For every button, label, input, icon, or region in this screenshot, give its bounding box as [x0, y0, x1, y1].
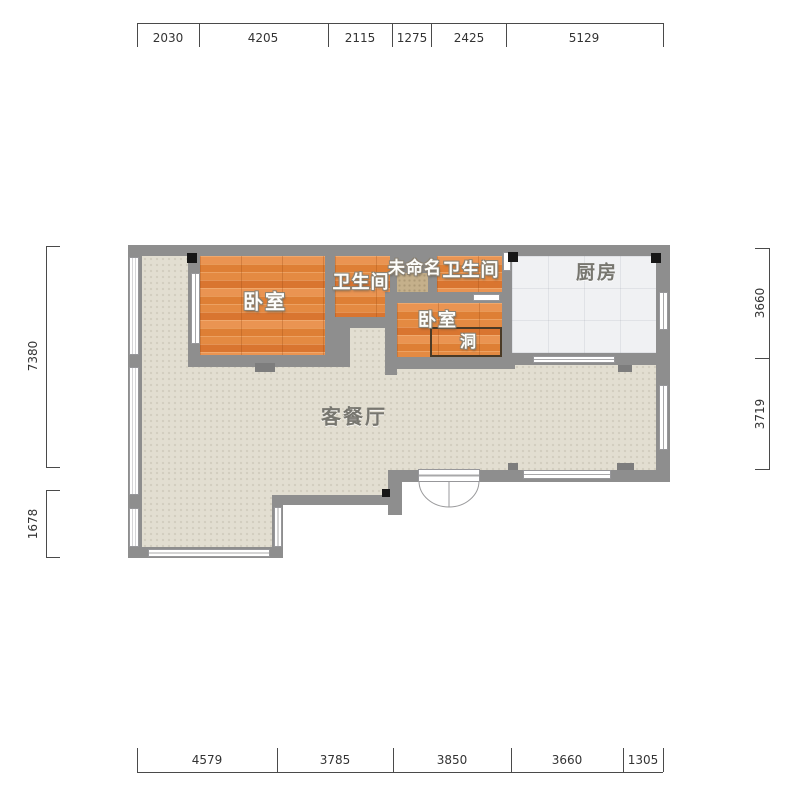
- bathroom1-label: 卫生间: [333, 268, 390, 294]
- window-kitchen-bottom: [533, 356, 615, 363]
- window-left-middle: [129, 367, 139, 495]
- ruler-right-line: [769, 248, 770, 470]
- dim-left-1: 7380: [26, 341, 40, 372]
- dim-bottom-5: 1305: [628, 753, 659, 767]
- ruler-left-tick: [46, 490, 60, 491]
- ruler-top-tick: [328, 23, 329, 47]
- dim-left-2: 1678: [26, 509, 40, 540]
- ruler-right-tick: [755, 358, 770, 359]
- window-right-living: [659, 385, 668, 450]
- dim-right-2: 3719: [753, 399, 767, 430]
- ruler-top-tick: [431, 23, 432, 47]
- dim-bottom-4: 3660: [552, 753, 583, 767]
- ruler-right-tick: [755, 248, 770, 249]
- bedroom1-label: 卧室: [243, 286, 287, 315]
- ruler-bottom-tick: [623, 748, 624, 772]
- ruler-right-tick: [755, 469, 770, 470]
- window-extension-bottom: [148, 549, 270, 557]
- corner-marker-kitchen-left: [508, 252, 518, 262]
- window-bottom-right: [523, 470, 611, 479]
- ruler-left-tick: [46, 557, 60, 558]
- bedroom2-label: 卧室: [418, 306, 458, 332]
- ruler-bottom-line: [137, 772, 663, 773]
- ruler-top-line: [137, 23, 663, 24]
- window-left-lower: [129, 508, 139, 547]
- ruler-bottom-tick: [663, 748, 664, 772]
- dim-bottom-1: 4579: [192, 753, 223, 767]
- hole-label: 洞: [460, 328, 476, 352]
- ruler-top-tick: [392, 23, 393, 47]
- ruler-left-line-upper: [46, 246, 47, 468]
- window-bedroom1-left: [191, 273, 200, 344]
- window-right-kitchen: [659, 292, 668, 330]
- dim-top-3: 2115: [345, 31, 376, 45]
- pillar-bottom-wall-1: [508, 463, 518, 470]
- ruler-left-tick: [46, 246, 60, 247]
- ruler-top-tick: [199, 23, 200, 47]
- door-bathroom2: [473, 294, 500, 301]
- floorplan-canvas: 卧室 卫生间 未命名 卫生间 厨房 卧室 洞 客餐厅 2030 4205 211…: [0, 0, 800, 800]
- ruler-bottom-tick: [137, 748, 138, 772]
- dim-bottom-3: 3850: [437, 753, 468, 767]
- bathroom2-label: 卫生间: [443, 256, 500, 282]
- ruler-left-tick: [46, 467, 60, 468]
- ruler-top-tick: [506, 23, 507, 47]
- unnamed-room-label: 未命名: [388, 254, 442, 279]
- ruler-bottom-tick: [511, 748, 512, 772]
- corner-marker-top-left: [187, 253, 197, 263]
- window-left-upper: [129, 257, 139, 355]
- pillar-bottom-wall-2: [617, 463, 634, 470]
- dim-top-2: 4205: [248, 31, 279, 45]
- ruler-top-tick: [137, 23, 138, 47]
- wall-bedroom2-bottom: [385, 357, 515, 369]
- dim-top-1: 2030: [153, 31, 184, 45]
- ruler-left-line-lower: [46, 490, 47, 558]
- ruler-bottom-tick: [393, 748, 394, 772]
- ruler-bottom-tick: [277, 748, 278, 772]
- dim-right-1: 3660: [753, 288, 767, 319]
- dim-top-5: 2425: [454, 31, 485, 45]
- living-dining-floor-extension: [142, 495, 272, 547]
- corner-marker-bottom: [382, 489, 390, 497]
- dim-bottom-2: 3785: [320, 753, 351, 767]
- pillar-below-bedroom1: [255, 363, 275, 372]
- dim-top-6: 5129: [569, 31, 600, 45]
- entrance-door-swing-arcs: [418, 481, 480, 510]
- ruler-top-tick: [663, 23, 664, 47]
- kitchen-label: 厨房: [576, 258, 618, 285]
- pillar-below-kitchen: [618, 365, 632, 372]
- living-dining-floor-lower-strip: [142, 470, 390, 495]
- window-extension-right: [274, 507, 282, 547]
- dim-top-4: 1275: [397, 31, 428, 45]
- corner-marker-kitchen-right: [651, 253, 661, 263]
- wall-bottom-jog: [388, 470, 402, 515]
- living-dining-label: 客餐厅: [321, 401, 387, 430]
